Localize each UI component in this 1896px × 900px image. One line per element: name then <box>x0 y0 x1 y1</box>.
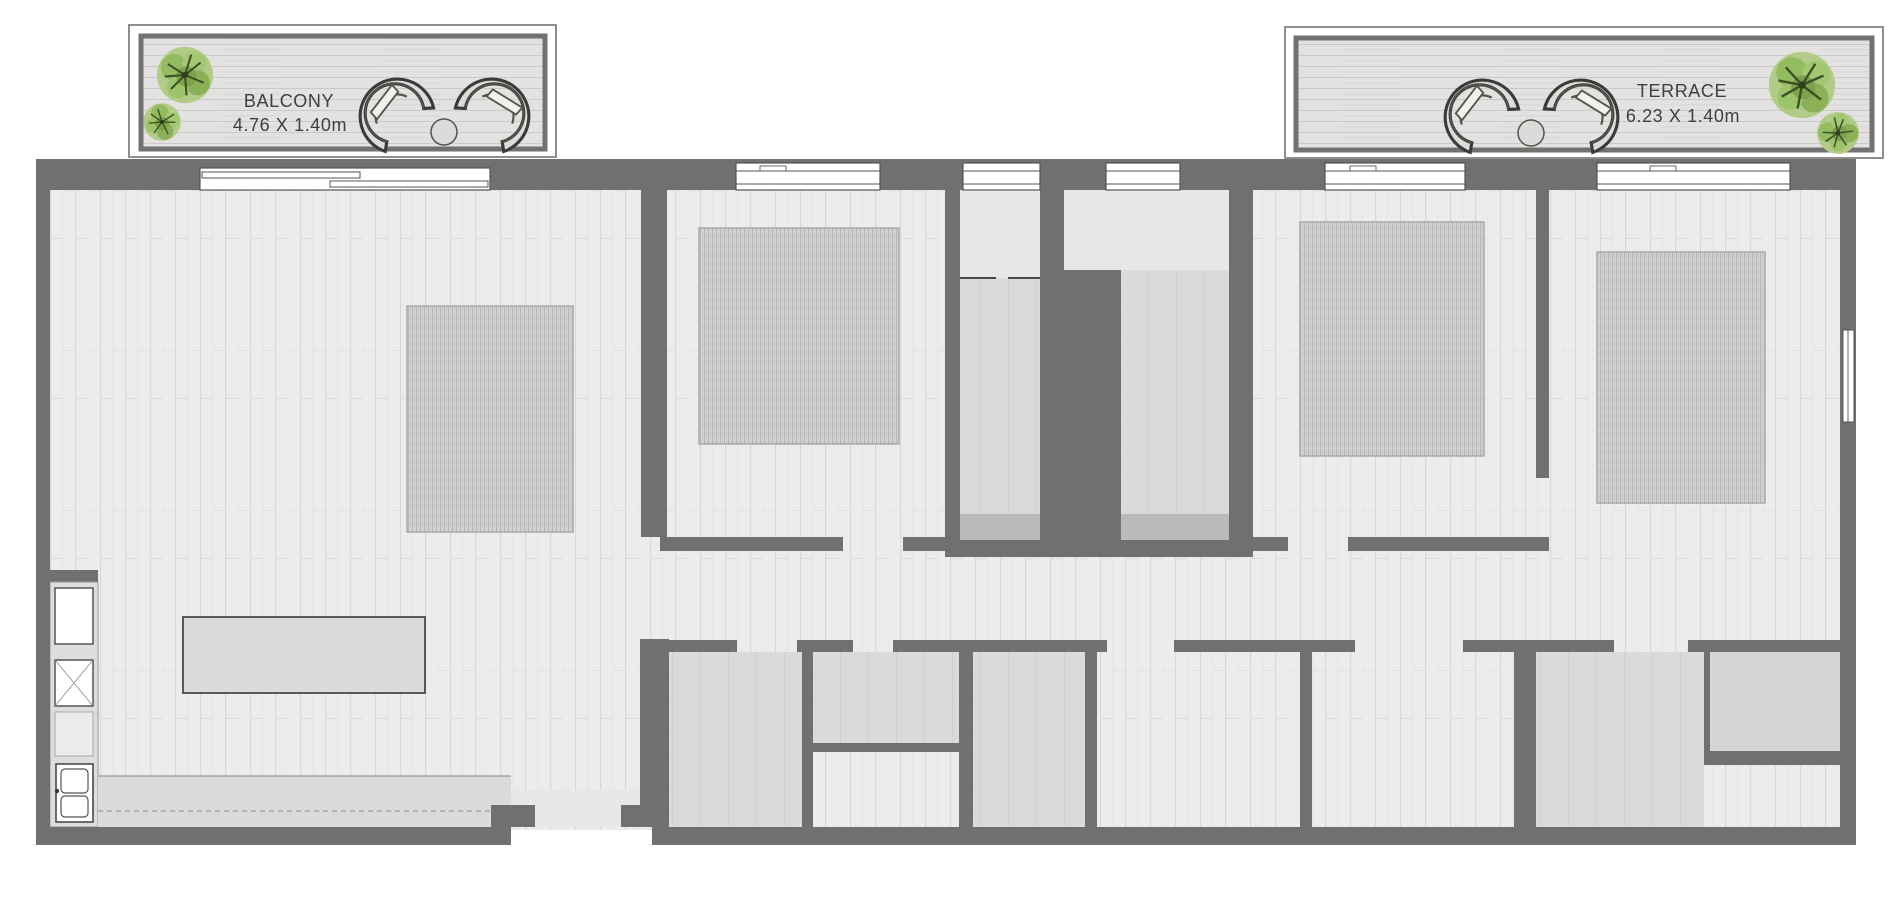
svg-text:6.23 X 1.40m: 6.23 X 1.40m <box>1626 106 1740 126</box>
svg-text:4.76 X 1.40m: 4.76 X 1.40m <box>233 115 347 135</box>
svg-text:BALCONY: BALCONY <box>244 91 334 111</box>
svg-text:TERRACE: TERRACE <box>1637 81 1727 101</box>
